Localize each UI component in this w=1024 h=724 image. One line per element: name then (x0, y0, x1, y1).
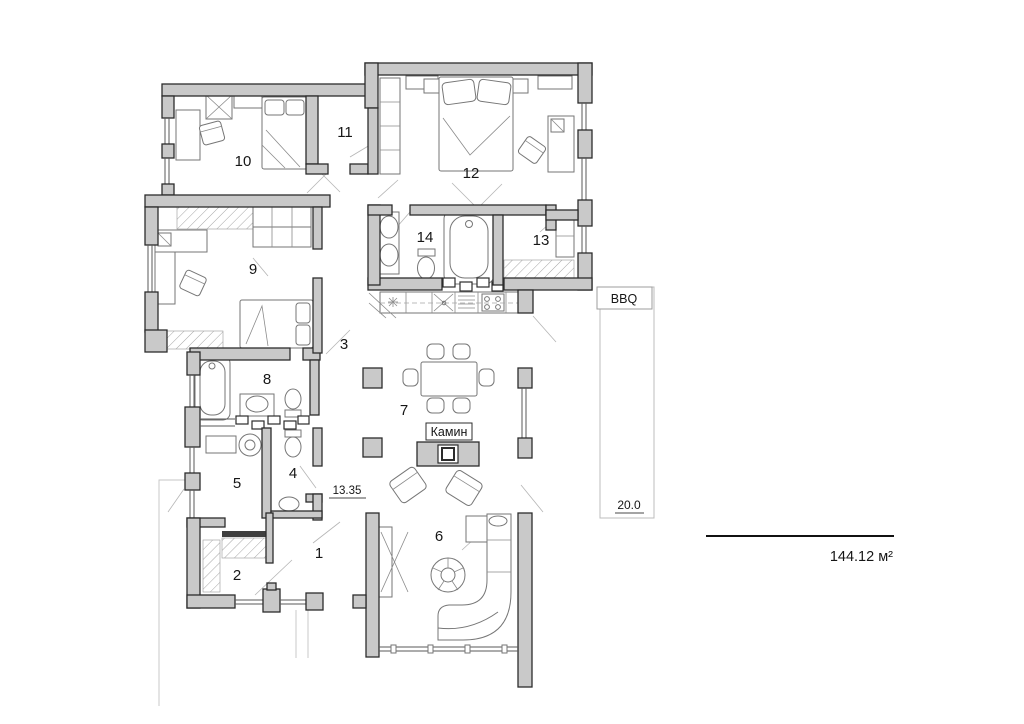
room-8-furniture (195, 356, 301, 420)
nightstand-icon (513, 79, 528, 93)
dining-chair-icon (427, 398, 444, 413)
room-label-13: 13 (533, 232, 550, 249)
toilet-tank (418, 249, 435, 256)
room-label-14: 14 (417, 229, 434, 246)
closet-hatch (203, 540, 220, 592)
room-label-7: 7 (400, 402, 408, 419)
floor-plan-page: BBQ 20.0 (0, 0, 1024, 724)
desk-icon (176, 110, 200, 160)
room-5-furniture (206, 434, 261, 456)
wardrobe-hatch (177, 207, 253, 229)
room-label-8: 8 (263, 371, 271, 388)
room-label-6: 6 (435, 528, 443, 545)
room-label-12: 12 (463, 165, 480, 182)
dining-chair-icon (453, 398, 470, 413)
total-area-label: 144.12 м² (830, 549, 893, 565)
armchair-icon (388, 466, 427, 505)
sofa-headrest (489, 516, 507, 526)
table-icon (206, 436, 236, 453)
room-7-furniture (403, 344, 494, 413)
pillow-icon (477, 79, 512, 105)
room-label-9: 9 (249, 261, 257, 278)
dining-chair-icon (453, 344, 470, 359)
washer-icon (239, 434, 261, 456)
room-12-furniture (380, 76, 574, 174)
dining-chair-icon (479, 369, 494, 386)
room-label-1: 1 (315, 545, 323, 562)
terrace-dimension: 20.0 (617, 498, 641, 512)
meander-wall (236, 416, 309, 429)
floor-plan-drawing: BBQ 20.0 (0, 0, 1024, 724)
room-label-5: 5 (233, 475, 241, 492)
dining-chair-icon (427, 344, 444, 359)
room-9-furniture (155, 207, 313, 349)
room-label-4: 4 (289, 465, 297, 482)
room-label-11: 11 (337, 124, 353, 141)
closet-hatch (222, 538, 266, 558)
room-label-10: 10 (235, 153, 252, 170)
width-dimension: 13.35 (333, 485, 362, 497)
sink-icon (380, 216, 398, 238)
pillow-icon (442, 79, 477, 105)
nightstand-icon (424, 79, 439, 93)
armchair-icon (444, 469, 483, 507)
bbq-label: BBQ (611, 292, 638, 306)
toilet-icon (285, 389, 301, 409)
column (363, 368, 382, 388)
room-label-3: 3 (340, 336, 348, 353)
counter-run (380, 292, 520, 313)
bbq-terrace-zone: BBQ 20.0 (597, 287, 654, 518)
sink-icon (279, 497, 299, 511)
dining-table-icon (421, 362, 477, 396)
toilet-icon (418, 257, 435, 279)
room-6-furniture (379, 514, 511, 640)
fireplace: Камин (388, 423, 483, 507)
sink-icon (246, 396, 268, 412)
kitchen-counter (369, 292, 520, 318)
closet-hatch (165, 331, 223, 349)
chair-icon (199, 120, 225, 145)
sink-icon (380, 244, 398, 266)
tv-unit-icon (379, 527, 392, 597)
room-label-2: 2 (233, 567, 241, 584)
fireplace-label: Камин (431, 425, 468, 439)
fridge-icon (388, 297, 398, 307)
room-14-furniture (378, 210, 494, 284)
chair-icon (517, 135, 546, 164)
dining-chair-icon (403, 369, 418, 386)
bathtub-icon (444, 210, 494, 284)
toilet-tank (285, 430, 301, 437)
wardrobe-hatch (504, 260, 574, 280)
entrance-door-block (263, 589, 280, 612)
terrace-outline (600, 287, 654, 518)
column (363, 438, 382, 457)
toilet-icon (285, 437, 301, 457)
